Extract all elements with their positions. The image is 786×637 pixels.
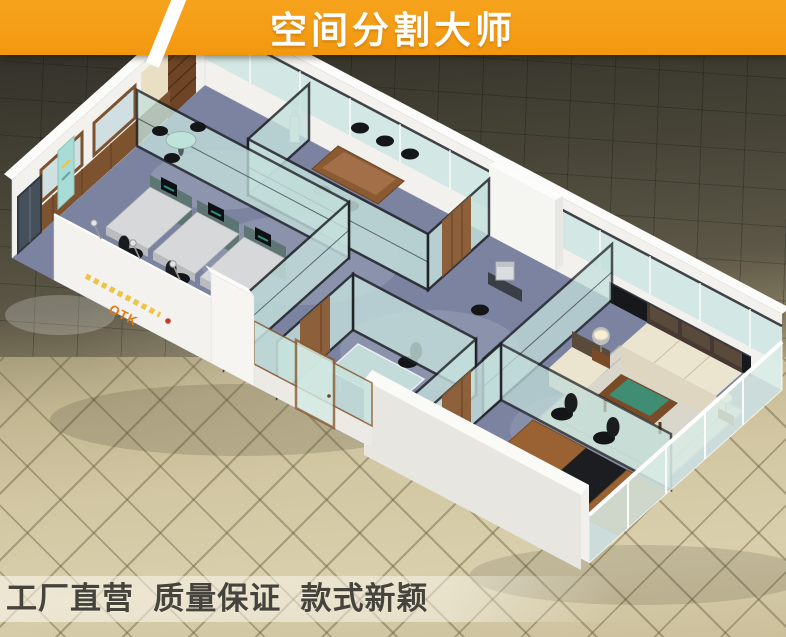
slogan-text: 工厂直营 质量保证 款式新颖 [6, 576, 428, 622]
slogan-band: 工厂直营 质量保证 款式新颖 [0, 576, 620, 622]
banner-title: 空间分割大师 [270, 0, 516, 53]
logo-seal [165, 318, 171, 324]
office-render: OTK [0, 0, 786, 637]
title-banner: 空间分割大师 [0, 0, 786, 55]
product-image: OTK 空间分割大师 工厂直营 质量保证 款式新颖 [0, 0, 786, 637]
